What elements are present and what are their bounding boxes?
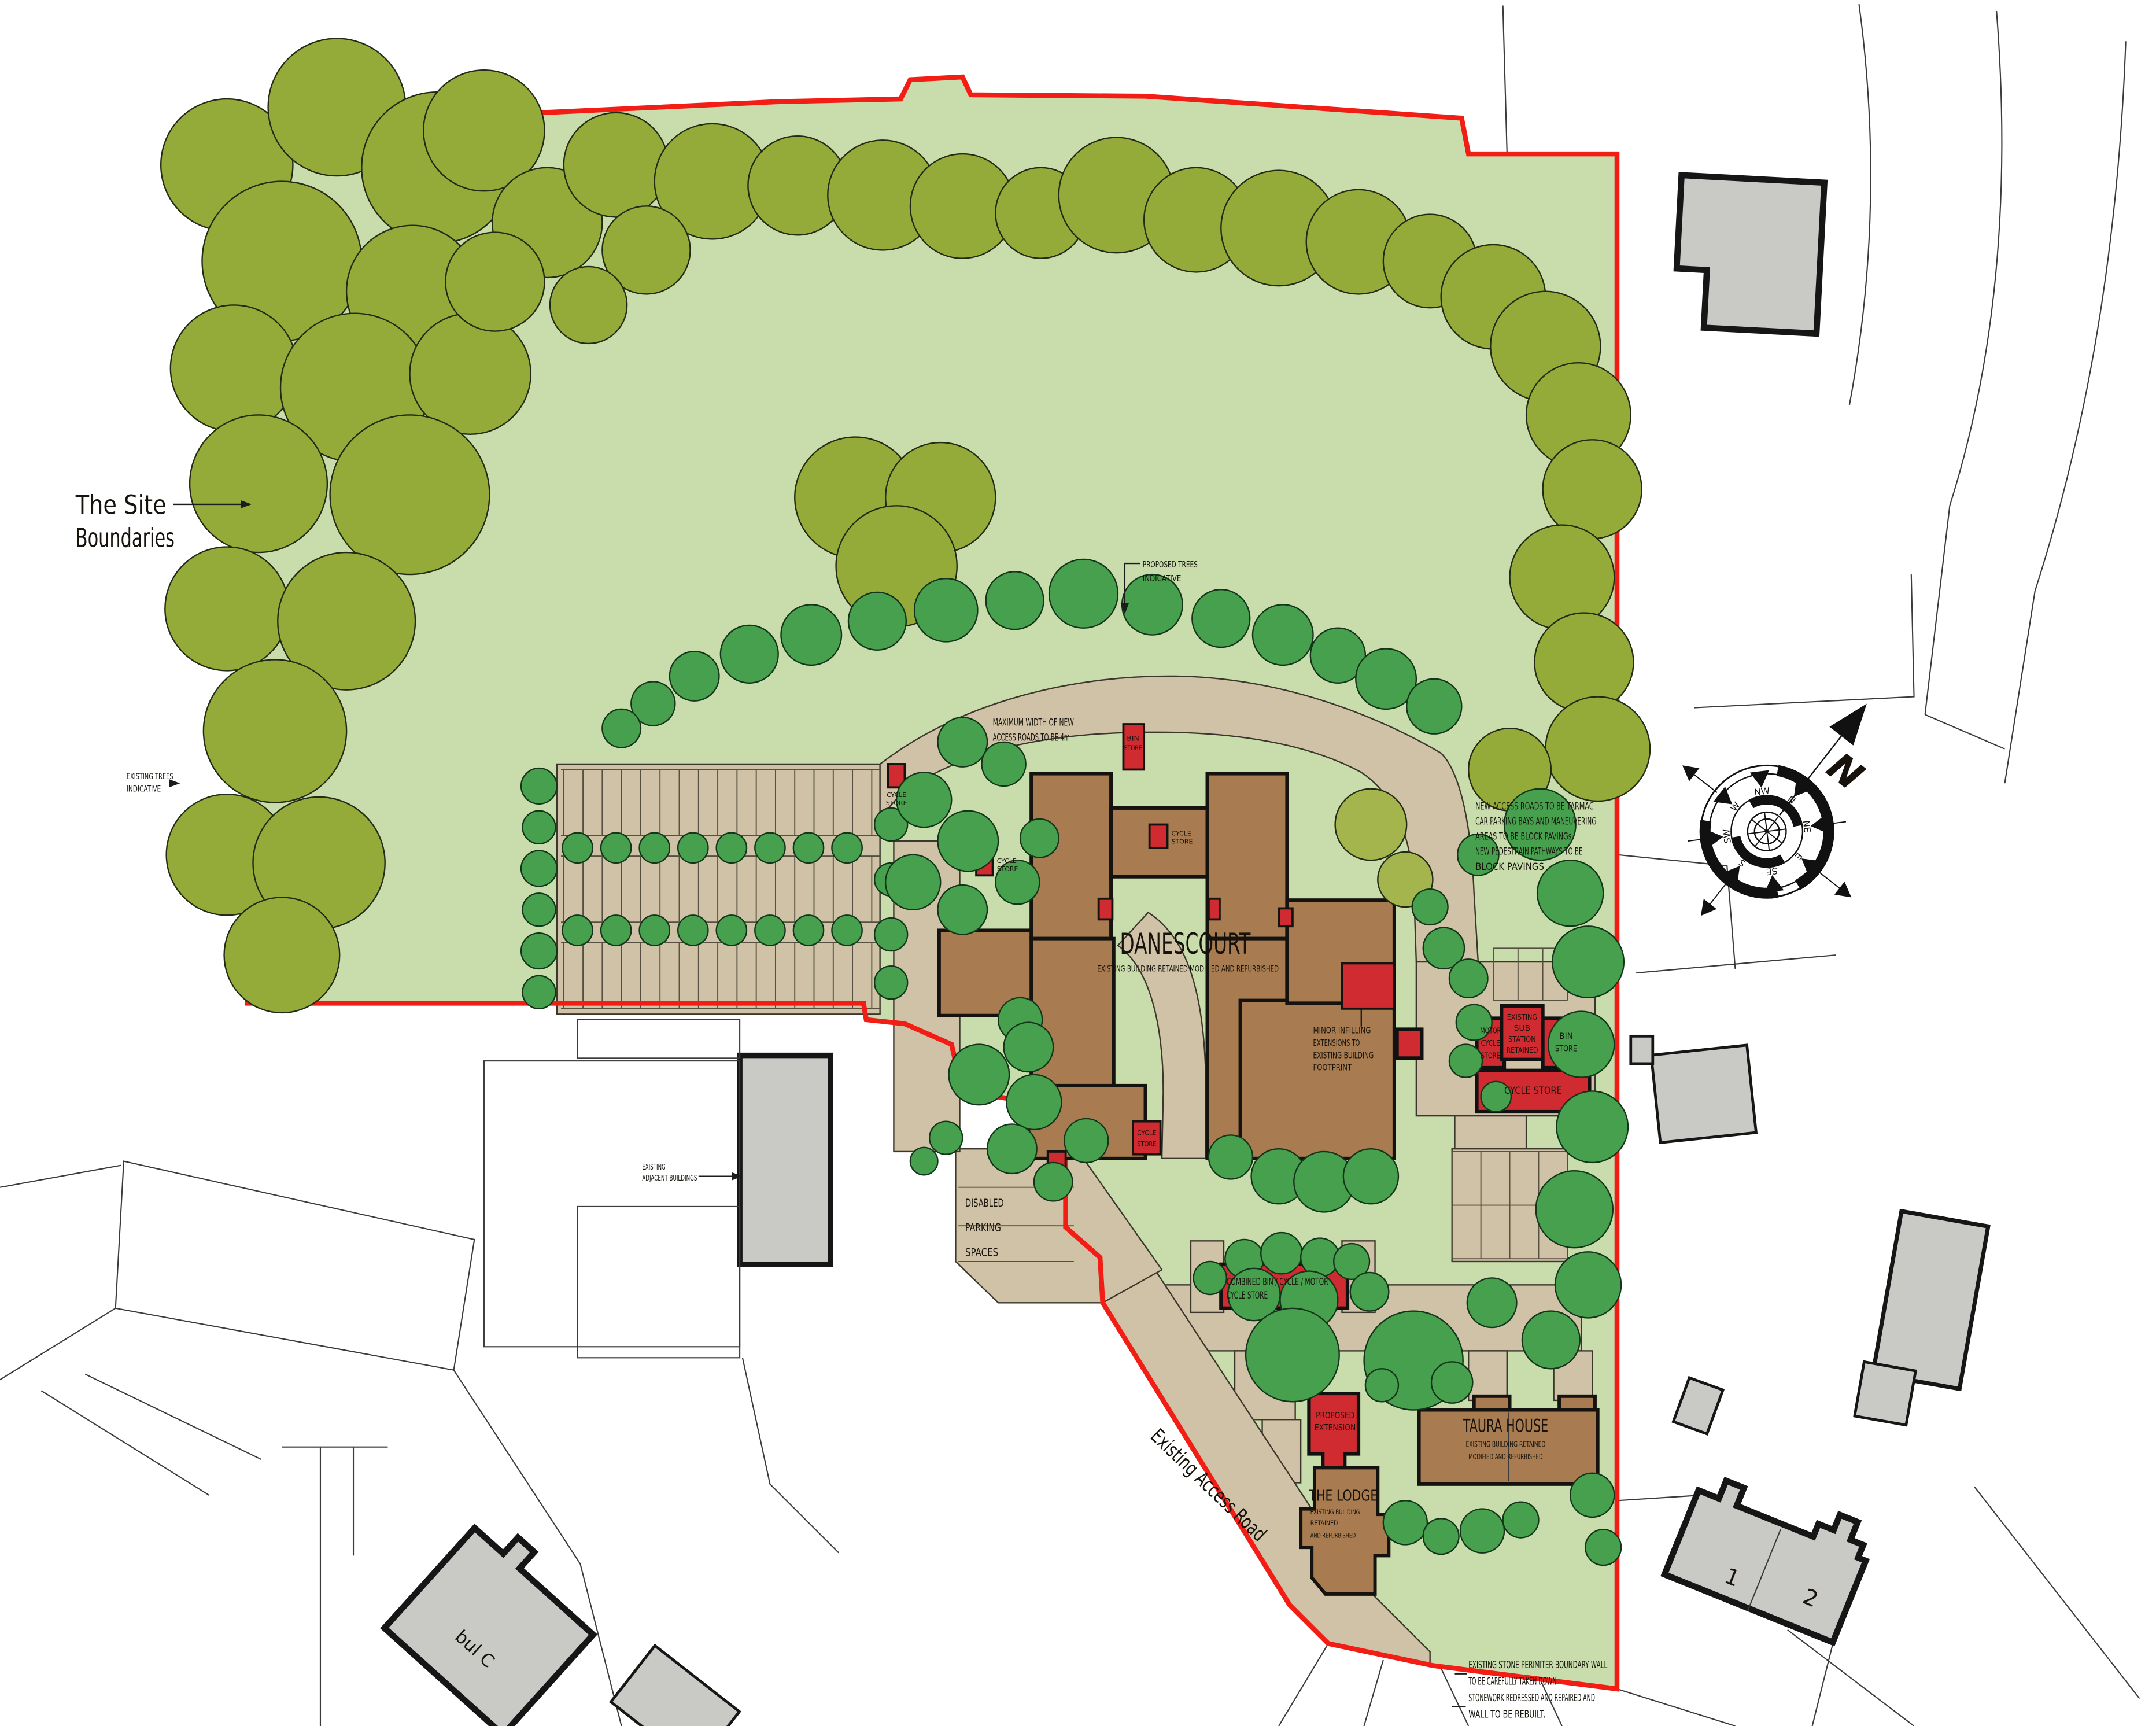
adjacent-buildings-label: ADJACENT BUILDINGS xyxy=(642,1174,697,1183)
proposed-trees-label: PROPOSED TREES xyxy=(1143,559,1198,570)
lodge-sub: EXISTING BUILDING xyxy=(1310,1508,1360,1516)
bin-store-small-label: BIN xyxy=(1127,735,1139,743)
cycle-store-tiny-label: CYCLE xyxy=(887,791,906,799)
proposed-trees-label: INDICATIVE xyxy=(1143,573,1182,584)
compass-rose: N N NE E SE S SW W NW xyxy=(1677,694,1899,921)
access-note: CAR PARKING BAYS AND MANEUVERING xyxy=(1475,816,1596,827)
access-note: AREAS TO BE BLOCK PAVINGs xyxy=(1475,831,1571,842)
motor-cycle-store-label: CYCLE xyxy=(1481,1039,1500,1048)
danescourt-name: DANESCOURT xyxy=(1120,927,1251,961)
lodge-name: THE LODGE xyxy=(1309,1487,1378,1504)
minor-infilling-note: MINOR INFILLING xyxy=(1313,1026,1371,1036)
sub-station-label: EXISTING xyxy=(1507,1013,1537,1022)
cycle-store-sw xyxy=(1133,1122,1161,1155)
proposed-extension-label: PROPOSED xyxy=(1316,1411,1354,1421)
bul-c-building xyxy=(385,1511,608,1726)
existing-building-center xyxy=(740,1056,830,1264)
cycle-store-sw-label: STORE xyxy=(1137,1139,1156,1148)
cycle-store-tiny-label: STORE xyxy=(997,865,1018,873)
car-park xyxy=(557,764,880,1014)
compass-point: SE xyxy=(1766,865,1778,877)
wall-note: EXISTING STONE PERIMITER BOUNDARY WALL xyxy=(1468,1659,1607,1671)
cycle-store-tiny-label: STORE xyxy=(1172,838,1193,846)
disabled-parking-label: PARKING xyxy=(965,1222,1001,1234)
proposed-extension-label: EXTENSION xyxy=(1315,1423,1356,1433)
cycle-store-label: CYCLE STORE xyxy=(1504,1085,1562,1096)
site-boundaries-label: Boundaries xyxy=(76,523,175,554)
max-width-note: ACCESS ROADS TO BE 4m xyxy=(993,732,1070,743)
bin-store-label: BIN xyxy=(1559,1032,1573,1041)
existing-trees-label: INDICATIVE xyxy=(127,784,161,794)
sub-station-label: SUB xyxy=(1514,1024,1531,1033)
max-width-note: MAXIMUM WIDTH OF NEW xyxy=(993,717,1074,728)
building-east xyxy=(1873,1211,1988,1389)
minor-infilling-note: EXISTING BUILDING xyxy=(1313,1050,1374,1060)
existing-trees-label: EXISTING TREES xyxy=(127,772,173,781)
compass-point: SW xyxy=(1721,828,1733,844)
wall-note: TO BE CAREFULLY TAKEN DOWN xyxy=(1468,1676,1557,1688)
motor-cycle-store-label: STORE xyxy=(1481,1052,1500,1060)
sub-station-label: RETAINED xyxy=(1507,1046,1538,1055)
disabled-parking-label: SPACES xyxy=(965,1246,998,1259)
access-note: NEW ACCESS ROADS TO BE TARMAC xyxy=(1475,801,1593,812)
compass-point: NW xyxy=(1753,785,1770,798)
cycle-store-tiny-label: CYCLE xyxy=(1172,829,1191,837)
wall-note: WALL TO BE REBUILT. xyxy=(1468,1709,1545,1721)
taura-name: TAURA HOUSE xyxy=(1463,1416,1548,1437)
compass-north-label: N xyxy=(1819,743,1872,799)
minor-infilling-note: FOOTPRINT xyxy=(1313,1063,1352,1073)
wall-note: STONEWORK REDRESSED AND REPAIRED AND xyxy=(1468,1692,1595,1704)
cycle-store-tiny-label: CYCLE xyxy=(997,857,1017,865)
units-building xyxy=(1663,1462,1878,1645)
site-boundaries-label: The Site xyxy=(75,490,167,521)
access-note: NEW PEDESTRAIN PATHWAYS TO BE xyxy=(1475,846,1582,857)
access-note: BLOCK PAVINGS xyxy=(1475,861,1544,872)
combined-store-label: CYCLE STORE xyxy=(1227,1290,1268,1301)
building-north-east xyxy=(1674,175,1825,334)
infill-extension xyxy=(1099,899,1113,920)
sub-station-label: STATION xyxy=(1508,1035,1536,1044)
compass-point: NE xyxy=(1801,820,1812,833)
motor-cycle-store-label: MOTOR xyxy=(1480,1027,1501,1036)
taura-sub: MODIFIED AND REFURBISHED xyxy=(1468,1453,1542,1462)
taura-sub: EXISTING BUILDING RETAINED xyxy=(1465,1441,1545,1450)
infill-extension-se xyxy=(1342,963,1394,1008)
lodge-sub: AND REFURBISHED xyxy=(1310,1532,1356,1540)
lodge-sub: RETAINED xyxy=(1310,1519,1338,1527)
cycle-store-tiny-label: STORE xyxy=(886,799,907,807)
bin-store-label: STORE xyxy=(1555,1044,1577,1053)
combined-store-label: COMBINED BIN / CYCLE / MOTOR xyxy=(1227,1276,1328,1287)
adjacent-buildings-label: EXISTING xyxy=(642,1163,665,1172)
minor-infilling-note: EXTENSIONS TO xyxy=(1313,1038,1360,1048)
danescourt-sub: EXISTING BUILDING RETAINED MODIFIED AND … xyxy=(1097,965,1279,974)
cycle-store-sw-label: CYCLE xyxy=(1137,1128,1156,1137)
bin-store-small-label: STORE xyxy=(1124,744,1142,752)
site-plan: N N NE E SE S SW W NW The Site Boundarie… xyxy=(0,0,2156,1726)
disabled-parking-label: DISABLED xyxy=(965,1197,1004,1209)
